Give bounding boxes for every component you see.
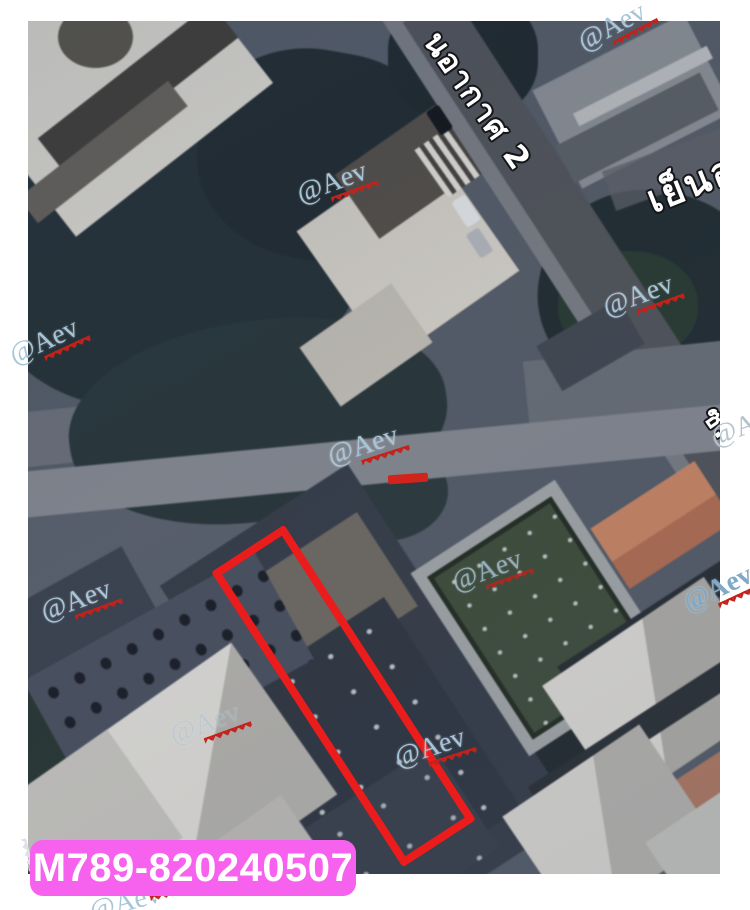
listing-image: นอากาศ 2 เย็นอ ซ. เ @Aev @Aev @Aev @Aev … <box>0 0 750 910</box>
listing-code-badge: M789-820240507 <box>30 840 356 896</box>
listing-code-text: M789-820240507 <box>33 846 354 891</box>
